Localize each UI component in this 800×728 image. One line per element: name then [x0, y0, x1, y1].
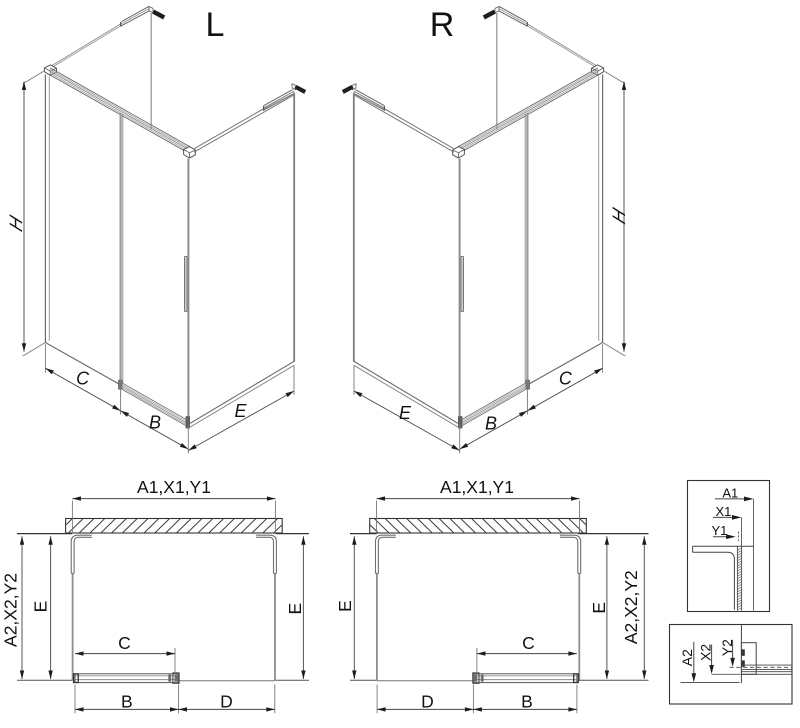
svg-text:B: B [521, 692, 533, 712]
svg-text:C: C [522, 633, 535, 653]
svg-text:L: L [206, 6, 225, 44]
svg-text:B: B [485, 414, 497, 434]
svg-text:B: B [121, 692, 133, 712]
svg-text:X1: X1 [715, 504, 731, 519]
svg-text:C: C [76, 369, 90, 389]
svg-text:A1,X1,Y1: A1,X1,Y1 [440, 477, 514, 497]
svg-text:C: C [118, 633, 131, 653]
svg-text:E: E [399, 403, 412, 423]
svg-text:A2: A2 [679, 649, 695, 666]
svg-text:Y2: Y2 [719, 639, 735, 656]
svg-text:E: E [234, 401, 247, 421]
svg-text:A1: A1 [722, 485, 738, 500]
svg-text:A1,X1,Y1: A1,X1,Y1 [137, 477, 211, 497]
svg-text:B: B [149, 413, 161, 433]
svg-text:Y1: Y1 [711, 523, 727, 538]
svg-text:E: E [335, 600, 355, 612]
svg-text:A2,X2,Y2: A2,X2,Y2 [621, 570, 641, 644]
svg-text:E: E [285, 603, 305, 615]
svg-text:D: D [421, 692, 434, 712]
svg-text:E: E [31, 601, 51, 613]
svg-text:A2,X2,Y2: A2,X2,Y2 [1, 573, 21, 647]
svg-text:C: C [559, 369, 573, 389]
svg-text:D: D [220, 692, 233, 712]
svg-text:E: E [589, 602, 609, 614]
svg-text:X2: X2 [698, 644, 714, 661]
svg-text:R: R [430, 6, 455, 44]
